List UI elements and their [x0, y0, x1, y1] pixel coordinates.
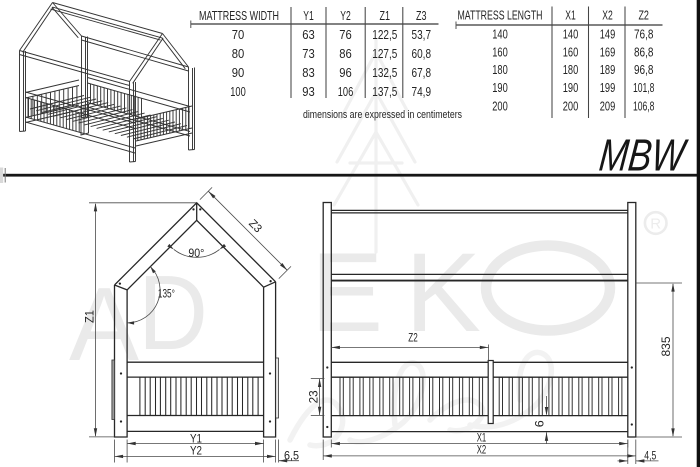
svg-text:199: 199: [600, 81, 616, 95]
svg-text:96,8: 96,8: [634, 63, 654, 77]
svg-text:23: 23: [309, 390, 321, 403]
svg-text:Z2: Z2: [638, 9, 649, 23]
svg-text:127,5: 127,5: [372, 47, 397, 61]
svg-text:R: R: [650, 215, 661, 232]
svg-text:135°: 135°: [158, 289, 175, 301]
svg-text:122,5: 122,5: [372, 28, 397, 42]
svg-text:X2: X2: [477, 445, 487, 457]
svg-text:A: A: [69, 267, 140, 383]
svg-text:180: 180: [492, 63, 508, 77]
svg-text:4,5: 4,5: [644, 451, 656, 463]
svg-text:76,8: 76,8: [634, 28, 654, 42]
svg-text:149: 149: [600, 28, 616, 42]
svg-text:Z3: Z3: [416, 9, 427, 23]
svg-text:D: D: [138, 254, 208, 372]
svg-text:X1: X1: [477, 433, 487, 445]
svg-text:200: 200: [492, 100, 508, 114]
svg-text:209: 209: [600, 100, 616, 114]
svg-text:70: 70: [232, 28, 245, 42]
svg-text:83: 83: [302, 66, 315, 80]
svg-text:60,8: 60,8: [412, 47, 432, 61]
svg-text:X2: X2: [602, 9, 613, 23]
svg-text:E: E: [311, 230, 383, 355]
svg-text:90: 90: [232, 66, 245, 80]
svg-text:200: 200: [563, 100, 579, 114]
svg-text:76: 76: [339, 28, 352, 42]
svg-text:190: 190: [492, 81, 508, 95]
svg-text:100: 100: [230, 85, 246, 99]
svg-text:190: 190: [563, 81, 579, 95]
svg-text:137,5: 137,5: [372, 85, 397, 99]
svg-text:74,9: 74,9: [412, 85, 432, 99]
svg-text:169: 169: [600, 45, 616, 59]
svg-text:Z3: Z3: [246, 218, 264, 236]
svg-text:67,8: 67,8: [412, 66, 432, 80]
svg-text:93: 93: [302, 85, 315, 99]
svg-text:6,5: 6,5: [284, 450, 299, 462]
svg-text:96: 96: [339, 66, 352, 80]
svg-text:80: 80: [232, 47, 245, 61]
svg-text:53,7: 53,7: [412, 28, 432, 42]
svg-text:Y2: Y2: [190, 446, 202, 458]
svg-text:189: 189: [600, 63, 616, 77]
svg-text:MATTRESS LENGTH: MATTRESS LENGTH: [458, 8, 543, 23]
svg-text:160: 160: [492, 45, 508, 59]
svg-text:160: 160: [563, 45, 579, 59]
svg-text:106,8: 106,8: [633, 100, 655, 114]
svg-text:835: 835: [661, 337, 673, 357]
svg-text:140: 140: [563, 28, 579, 42]
svg-text:132,5: 132,5: [372, 66, 397, 80]
svg-text:Y2: Y2: [340, 9, 351, 23]
svg-text:106: 106: [338, 85, 354, 99]
svg-text:86,8: 86,8: [634, 45, 654, 59]
svg-text:Z2: Z2: [408, 333, 418, 345]
svg-text:86: 86: [339, 47, 352, 61]
svg-text:Z1: Z1: [84, 310, 96, 323]
svg-text:Z1: Z1: [380, 9, 391, 23]
svg-text:X1: X1: [565, 9, 576, 23]
svg-text:dimensions are expressed in ce: dimensions are expressed in centimeters: [303, 109, 462, 121]
svg-text:Y1: Y1: [303, 9, 314, 23]
svg-text:101,8: 101,8: [633, 81, 655, 95]
svg-text:Y1: Y1: [190, 433, 202, 445]
svg-text:73: 73: [302, 47, 315, 61]
svg-text:180: 180: [563, 63, 579, 77]
svg-text:MBW: MBW: [597, 130, 691, 181]
svg-text:6: 6: [535, 420, 547, 427]
svg-text:90°: 90°: [188, 248, 204, 260]
svg-text:140: 140: [492, 28, 508, 42]
svg-text:63: 63: [302, 28, 315, 42]
svg-text:MATTRESS WIDTH: MATTRESS WIDTH: [199, 8, 279, 23]
